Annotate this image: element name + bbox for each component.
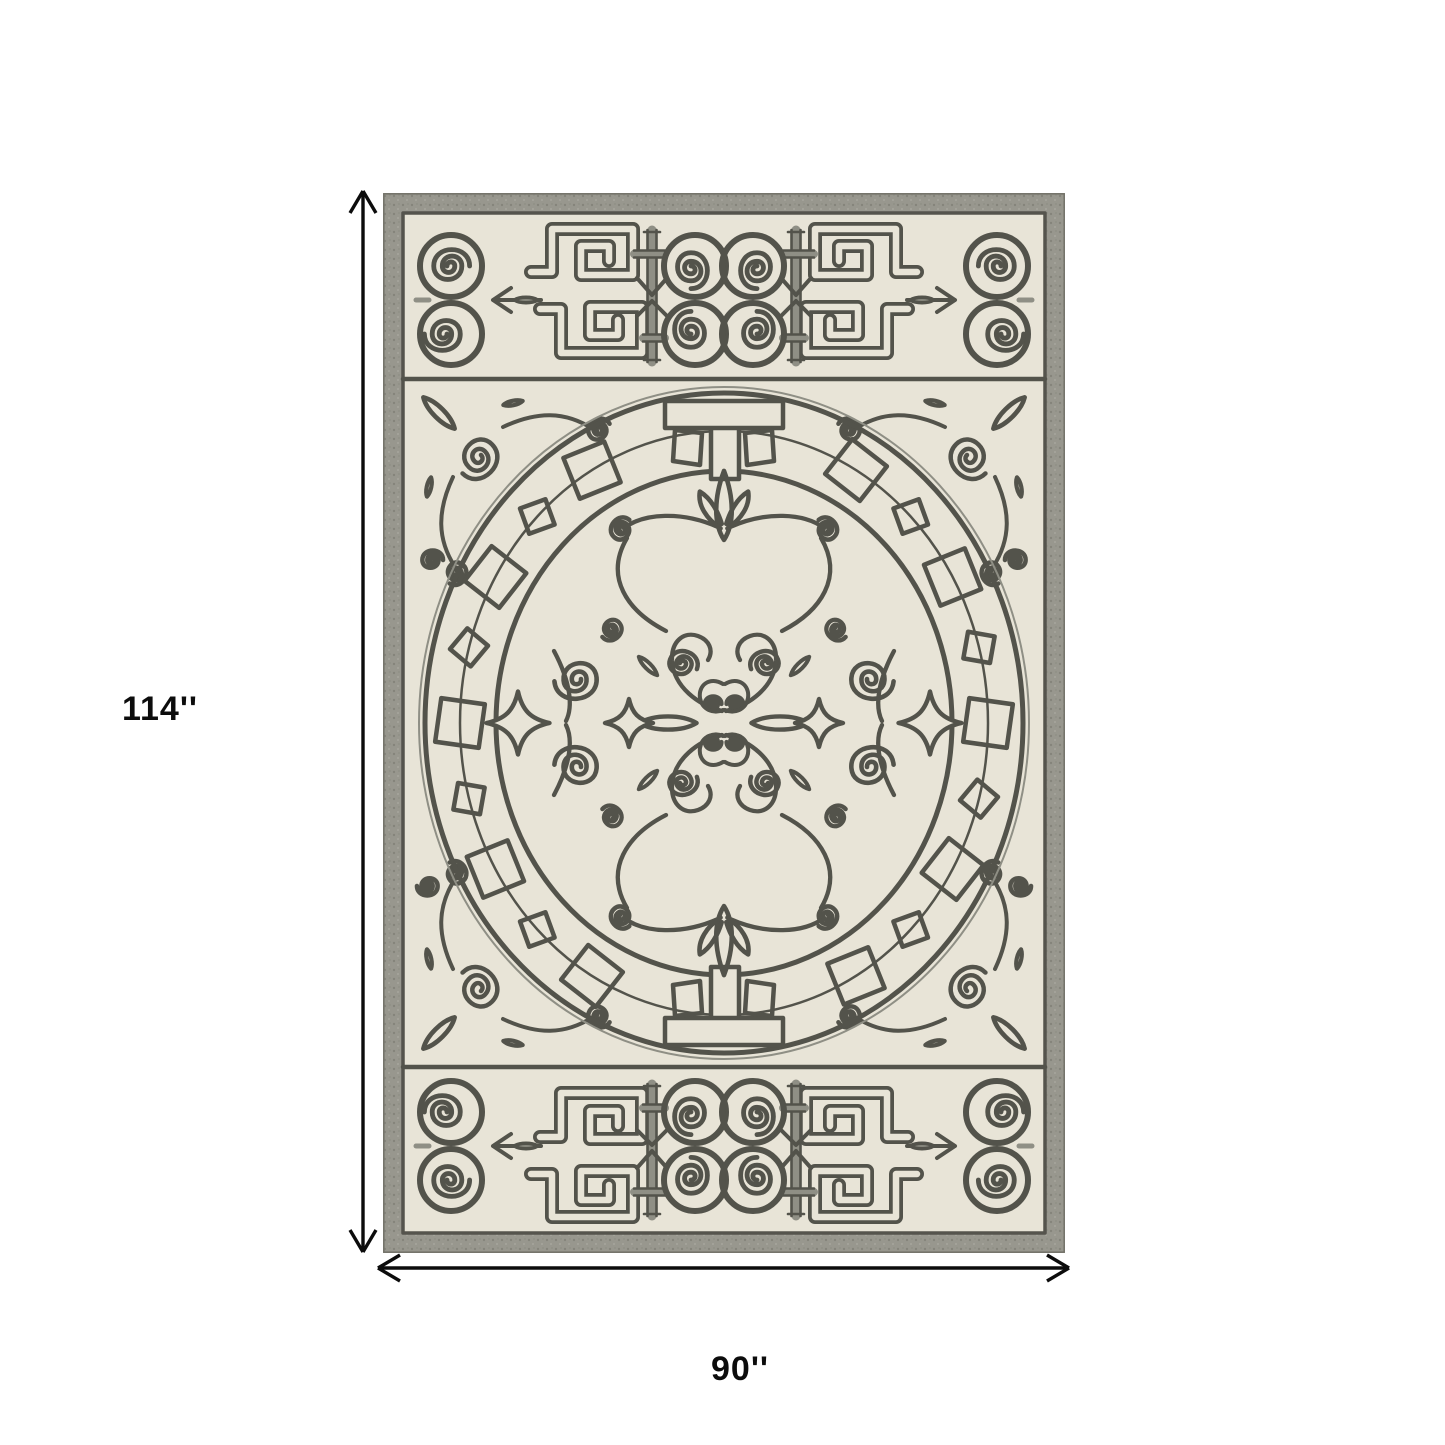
product-dimension-diagram: 114'' 90'' bbox=[0, 0, 1445, 1445]
rug-image bbox=[383, 193, 1065, 1253]
height-dimension-label: 114'' bbox=[90, 692, 230, 726]
horizontal-dimension-arrow-icon bbox=[378, 1255, 1069, 1281]
vertical-dimension-arrow-icon bbox=[350, 191, 376, 1252]
width-dimension-label: 90'' bbox=[670, 1352, 810, 1386]
